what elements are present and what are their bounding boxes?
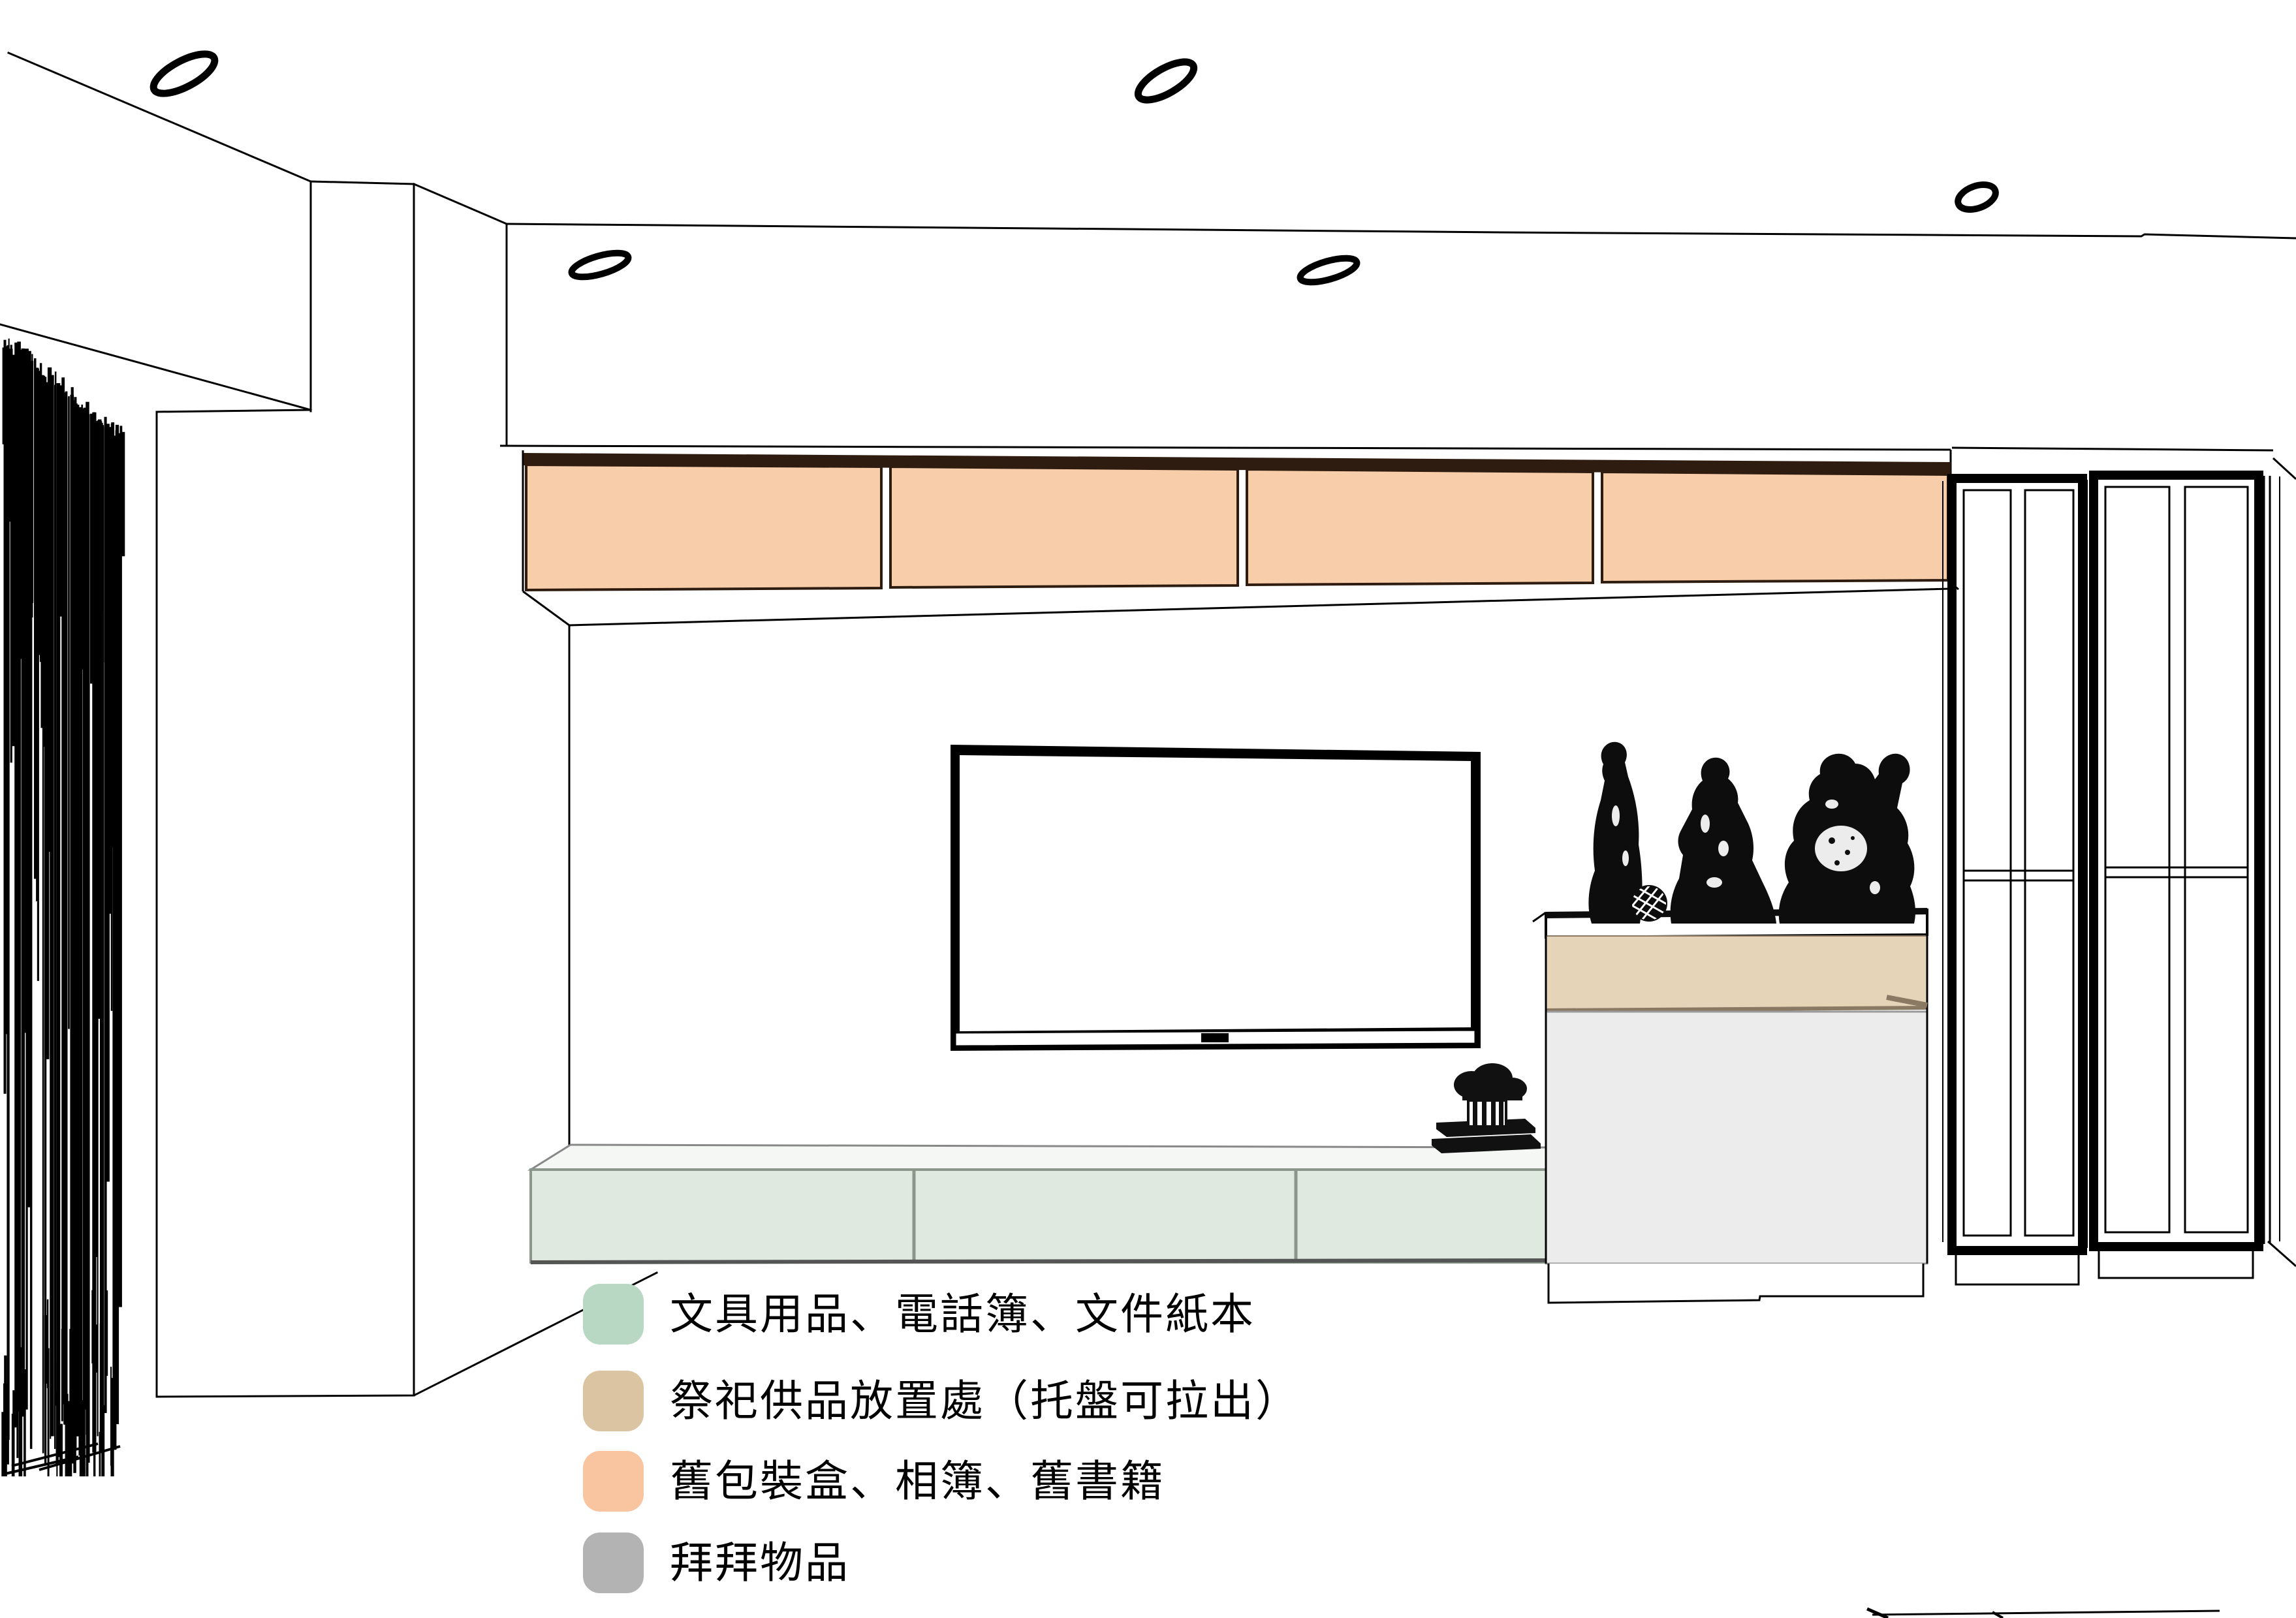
glass-cabinet-left-frame: [1952, 478, 2083, 1251]
curtain-fold-stroke: [109, 427, 111, 914]
curtain-fold-stroke: [16, 1319, 18, 1412]
ceiling-line-long: [507, 224, 2296, 238]
statue-seated-deity: [1671, 758, 1776, 924]
upper-cabinet-door-3: [1247, 469, 1593, 585]
curtain-fold-stroke: [75, 1335, 77, 1382]
curtain-fold-stroke: [102, 425, 104, 1458]
curtain-fold-stroke: [59, 1424, 63, 1477]
curtain-fold-stroke: [3, 1384, 7, 1476]
right-wall-corner-top: [2273, 458, 2296, 479]
ceiling-lights: [148, 46, 1999, 287]
curtain-fold-stroke: [24, 1369, 25, 1476]
ceiling-fold-diagonal: [414, 184, 507, 224]
downlight-icon: [1298, 253, 1359, 287]
soffit-front-bottom-edge: [157, 410, 311, 412]
curtain-fold-stroke: [88, 414, 90, 1463]
curtain-fold-stroke: [106, 1290, 108, 1376]
curtain-fold-stroke: [52, 383, 54, 1407]
legend-item-offerings: 祭祀供品放置處（托盤可拉出）: [583, 1371, 1300, 1431]
curtain-fold-stroke: [1, 1412, 3, 1476]
curtain-fold-stroke: [61, 1329, 63, 1421]
curtain-fold-stroke: [66, 397, 68, 1457]
bottom-right-partial-outline: [1867, 1609, 2220, 1618]
altar-shelf-left-end: [1533, 912, 1546, 922]
legend-item-stationery: 文具用品、電話簿、文件紙本: [583, 1284, 1255, 1345]
glass-cabinet-right-frame: [2094, 475, 2259, 1247]
upper-cabinet-door-4: [1602, 472, 1948, 582]
glass-cabinets: [1943, 448, 2296, 1284]
legend-label: 拜拜物品: [670, 1532, 850, 1593]
curtain-fold-stroke: [71, 1303, 73, 1459]
plant-foliage: [1454, 1063, 1527, 1100]
upper-cabinets: [500, 446, 1958, 625]
curtain-fold-stroke: [44, 1315, 47, 1384]
curtain-fold-stroke: [118, 433, 122, 1307]
altar-band-divider: [1546, 1008, 1927, 1010]
downlight-icon: [148, 46, 221, 101]
altar-base: [1549, 1264, 1923, 1303]
curtain-fold-stroke: [81, 405, 83, 670]
glass-cabinet-right-base: [2099, 1247, 2253, 1278]
upper-cabinet-door-1: [526, 465, 881, 590]
downlight-icon: [1955, 180, 1999, 214]
downlight-icon: [1133, 55, 1199, 108]
curtain-fold-stroke: [50, 1298, 52, 1407]
glass-door-pane: [2185, 487, 2248, 1232]
altar-offering-drawer-band: [1546, 936, 1927, 1009]
curtain-fold-stroke: [68, 396, 70, 1029]
statues: [1546, 742, 1927, 927]
curtain-fold-stroke: [55, 371, 57, 1405]
curtain-fold-stroke: [31, 354, 33, 617]
curtain-fold-stroke: [82, 1400, 86, 1476]
curtain-fold-stroke: [93, 412, 95, 602]
curtain-fold-stroke: [112, 1378, 114, 1476]
glass-door-pane: [2025, 490, 2073, 1236]
tv-cabinet-top-surface: [531, 1145, 1546, 1170]
curtain-fold-stroke: [101, 1405, 104, 1476]
buddha-belly: [1815, 826, 1867, 871]
curtain-fold-stroke: [34, 358, 37, 879]
glass-cabinet-top-line: [1952, 448, 2273, 450]
curtain-fold-stroke: [56, 1360, 57, 1476]
upper-cabinet-top-line: [500, 446, 1951, 450]
tv: [951, 745, 1481, 1051]
legend-label: 文具用品、電話簿、文件紙本: [670, 1284, 1255, 1345]
glass-door-pane: [1964, 490, 2011, 1236]
plant-and-books: [1432, 1063, 1541, 1153]
floor-line: [157, 1273, 657, 1397]
legend-item-old-boxes: 舊包裝盒、相簿、舊書籍: [583, 1451, 1165, 1512]
tv-cabinet-bottom-edge: [531, 1260, 1547, 1262]
legend-label: 舊包裝盒、相簿、舊書籍: [670, 1451, 1165, 1512]
legend-item-worship: 拜拜物品: [583, 1532, 850, 1593]
curtain-fold-stroke: [99, 1432, 101, 1476]
glass-cabinet-left-base: [1956, 1251, 2079, 1284]
legend-swatch-old-boxes: [583, 1451, 644, 1512]
altar-cabinet: [1533, 910, 1927, 1303]
curtain-fold-stroke: [58, 388, 60, 1425]
curtain-fold-stroke: [22, 349, 25, 1416]
tv-cabinet-front: [531, 1170, 1547, 1262]
curtain-fold-stroke: [121, 432, 125, 557]
legend-swatch-stationery: [583, 1284, 644, 1345]
altar-body: [1546, 1012, 1927, 1264]
downlight-icon: [569, 248, 631, 282]
curtain-fold-stroke: [73, 1422, 76, 1473]
legend-label: 祭祀供品放置處（托盤可拉出）: [670, 1371, 1300, 1431]
elevation-drawing: 文具用品、電話簿、文件紙本 祭祀供品放置處（托盤可拉出） 舊包裝盒、相簿、舊書籍…: [0, 0, 2296, 1618]
curtain: [1, 339, 125, 1476]
upper-cabinet-underside-corner: [523, 591, 569, 625]
upper-cabinet-door-2: [890, 467, 1238, 587]
tv-logo: [1201, 1033, 1229, 1042]
legend-swatch-worship: [583, 1532, 644, 1593]
upper-cabinet-underside-line: [569, 589, 1951, 625]
legend-swatch-offerings: [583, 1371, 644, 1431]
tv-cabinet: [531, 1145, 1547, 1262]
curtain-fold-stroke: [50, 372, 51, 1439]
tv-screen: [960, 755, 1471, 1031]
curtain-fold-stroke: [86, 1358, 89, 1476]
right-wall-corner-bottom: [2268, 1241, 2296, 1266]
curtain-fold-stroke: [86, 414, 87, 1422]
glass-door-pane: [2105, 487, 2169, 1232]
curtain-fold-stroke: [10, 345, 12, 762]
ceiling-bulkhead-back-edge: [311, 181, 414, 184]
